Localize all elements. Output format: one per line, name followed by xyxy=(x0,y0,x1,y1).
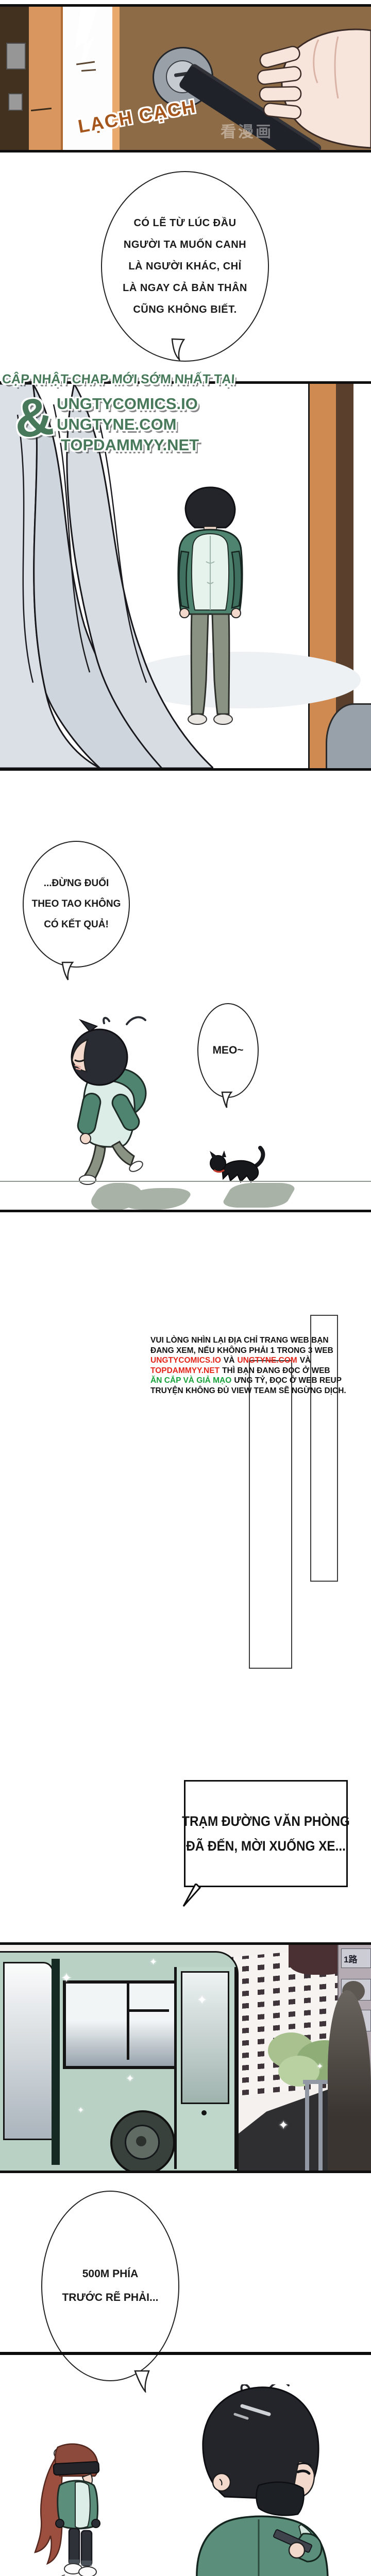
panel-bus-stop: 1路 61路 11路 ✦ ✦ ✦ ✦ ✦ ✦ ✦ xyxy=(0,1945,371,2171)
piracy-warning: VUI LÒNG NHÌN LẠI ĐỊA CHỈ TRANG WEB BẠN … xyxy=(150,1335,371,1396)
bubble-line: THEO TAO KHÔNG xyxy=(32,894,121,914)
warning-line: ĂN CẮP VÀ GIẢ MẠOƯNG TỶ, ĐỌC Ở WEB REUP xyxy=(150,1376,371,1386)
bubble-line: MEO~ xyxy=(212,1044,243,1057)
bubble-line: ...ĐỪNG ĐUỔI xyxy=(44,873,109,894)
bubble-line: CÓ LẼ TỪ LÚC ĐẦU xyxy=(133,212,236,234)
translator-banner: CẬP NHẬT CHAP MỚI SỚM NHẤT TẠI & UNGTYCO… xyxy=(0,372,237,465)
shadow-cat xyxy=(220,1183,298,1208)
warning-line: TOPDAMMYY.NETTHÌ BẠN ĐANG ĐỌC Ở WEB xyxy=(150,1366,371,1376)
door-frame-orange xyxy=(29,7,63,150)
announcement-tail xyxy=(179,1884,201,1907)
bubble-tail xyxy=(170,338,185,361)
bubble-line: TRƯỚC RẼ PHẢI... xyxy=(62,2286,158,2310)
speech-bubble-opening: CÓ LẼ TỪ LÚC ĐẦU NGƯỜI TA MUỐN CANH LÀ N… xyxy=(101,171,269,362)
empty-panel-outline xyxy=(249,1360,292,1669)
bus: ✦ ✦ ✦ ✦ ✦ xyxy=(0,1951,239,2171)
bubble-tail xyxy=(61,961,74,981)
ground-line xyxy=(0,1181,371,1182)
black-cat xyxy=(208,1146,267,1184)
bus-wheel xyxy=(110,2110,175,2171)
bubble-line: LÀ NGAY CẢ BẢN THÂN xyxy=(123,277,247,299)
sparkle-icon: ✦ xyxy=(126,2072,134,2085)
bubble-line: NGƯỜI TA MUỐN CANH xyxy=(124,234,246,256)
bubble-line: 500M PHÍA xyxy=(82,2262,139,2286)
window-mullion xyxy=(127,2009,169,2012)
sparkle-icon: ✦ xyxy=(77,2105,84,2115)
warning-line: ĐANG XEM, NẾU KHÔNG PHẢI 1 TRONG 3 WEB xyxy=(150,1346,371,1356)
site-red: TOPDAMMYY.NET xyxy=(150,1366,220,1375)
banner-site: UNGTYCOMICS.IO xyxy=(57,395,198,413)
door-wall-strip xyxy=(0,7,29,150)
bubble-tail xyxy=(221,1091,233,1109)
chibi-boy-walking xyxy=(40,1016,156,1186)
door-hinge xyxy=(8,93,23,111)
speech-bubble-chase: ...ĐỪNG ĐUỔI THEO TAO KHÔNG CÓ KẾT QUẢ! xyxy=(23,841,130,968)
bubble-line: LÀ NGƯỜI KHÁC, CHỈ xyxy=(128,256,241,277)
panel-border xyxy=(0,2171,371,2173)
door-hinge xyxy=(6,43,26,70)
panel-divider xyxy=(0,2352,371,2355)
watermark-kanmanhua: 看漫画 xyxy=(221,119,273,142)
speech-bubble-meow: MEO~ xyxy=(197,1003,259,1098)
bus-route-sign: 1路 xyxy=(341,1948,371,1968)
chibi-boy-phone xyxy=(181,2384,336,2576)
bus-door-glass xyxy=(181,1971,229,2104)
bus-announcement-box: TRẠM ĐƯỜNG VĂN PHÒNG ĐÃ ĐẾN, MỜI XUỐNG X… xyxy=(184,1780,348,1887)
bus-door xyxy=(174,1967,237,2169)
announcement-line: TRẠM ĐƯỜNG VĂN PHÒNG xyxy=(182,1809,350,1834)
banner-site: TOPDAMMYY.NET xyxy=(61,436,199,454)
banner-site: UNGTYNE.COM xyxy=(57,415,177,434)
warning-line: UNGTYCOMICS.IOVÀUNGTYNE.COMVÀ xyxy=(150,1355,371,1366)
bus-pillar xyxy=(52,1959,60,2165)
announcement-line: ĐÃ ĐẾN, MỜI XUỐNG XE... xyxy=(186,1834,346,1858)
bubble-line: CŨNG KHÔNG BIẾT. xyxy=(133,299,237,320)
window-mullion xyxy=(127,1984,129,2060)
bubble-tail xyxy=(133,2369,150,2393)
sparkle-icon: ✦ xyxy=(149,1957,157,1968)
site-red: UNGTYNE.COM xyxy=(237,1356,297,1365)
banner-heading: CẬP NHẬT CHAP MỚI SỚM NHẤT TẠI xyxy=(2,372,235,387)
panel-border xyxy=(0,150,371,152)
webtoon-page: LẠCH CẠCH 看漫画 CÓ LẼ TỪ LÚC ĐẦU NGƯỜI TA … xyxy=(0,0,371,2576)
bus-door-knob xyxy=(201,2110,207,2115)
hand-holding-key xyxy=(183,21,371,150)
panel-border xyxy=(0,1210,371,1212)
warning-line: TRUYỆN KHÔNG ĐỦ VIEW TEAM SẼ NGỪNG DỊCH. xyxy=(150,1386,371,1396)
panel-door-lock: LẠCH CẠCH 看漫画 xyxy=(0,7,371,150)
chibi-girl xyxy=(30,2442,112,2576)
panel-border xyxy=(0,768,371,771)
warning-green-text: ĂN CẮP VÀ GIẢ MẠO xyxy=(150,1376,231,1385)
warning-line: VUI LÒNG NHÌN LẠI ĐỊA CHỈ TRANG WEB BẠN xyxy=(150,1335,371,1346)
hall-door-frame xyxy=(308,384,338,768)
site-red: UNGTYCOMICS.IO xyxy=(150,1356,221,1365)
ampersand: & xyxy=(11,385,56,450)
bus-side-window xyxy=(63,1980,178,2069)
bus-windshield xyxy=(3,1962,54,2140)
bubble-line: CÓ KẾT QUẢ! xyxy=(44,914,109,935)
wheel-hub xyxy=(136,2136,146,2146)
